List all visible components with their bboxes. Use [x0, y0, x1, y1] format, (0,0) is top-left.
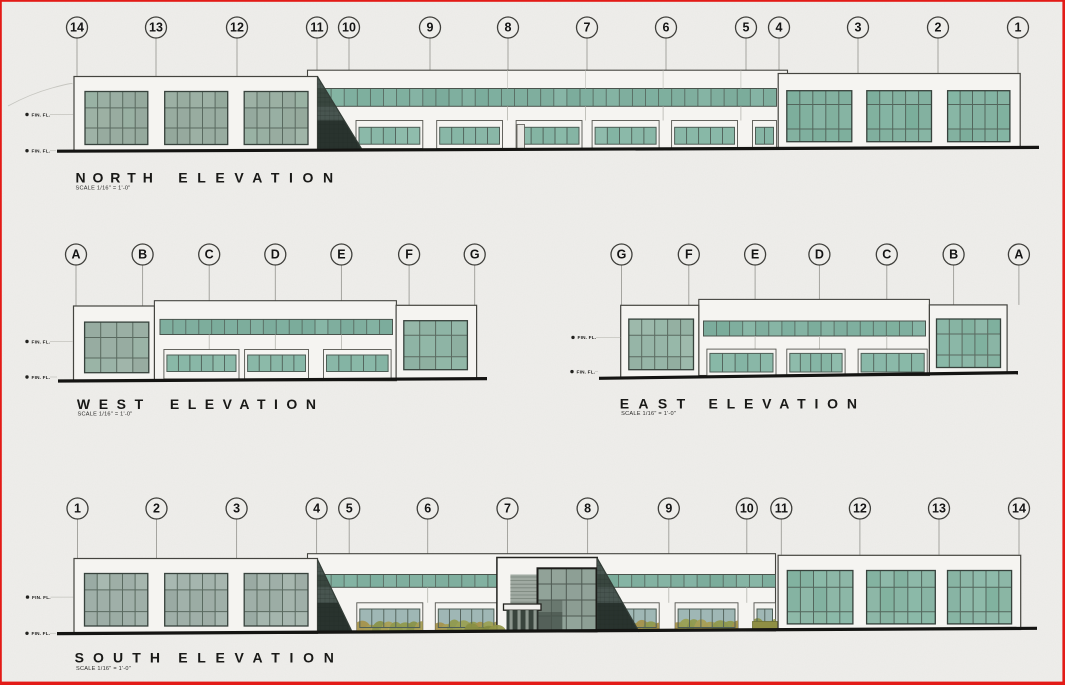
svg-text:4: 4 — [313, 502, 320, 516]
svg-text:FIN. FL.: FIN. FL. — [32, 112, 51, 117]
svg-text:E: E — [337, 248, 345, 262]
svg-text:1: 1 — [74, 502, 81, 516]
svg-text:FIN. FL.: FIN. FL. — [32, 375, 51, 380]
svg-text:2: 2 — [935, 21, 942, 35]
svg-text:10: 10 — [342, 21, 356, 35]
svg-text:12: 12 — [230, 21, 244, 35]
svg-text:3: 3 — [233, 502, 240, 516]
svg-text:C: C — [205, 248, 214, 262]
svg-text:A: A — [1014, 248, 1023, 262]
svg-text:2: 2 — [153, 502, 160, 516]
svg-text:G: G — [470, 248, 480, 262]
svg-text:FIN. FL.: FIN. FL. — [32, 595, 51, 600]
svg-text:1: 1 — [1015, 21, 1022, 35]
svg-text:13: 13 — [932, 502, 946, 516]
svg-text:G: G — [617, 248, 627, 262]
svg-text:SCALE 1/16" = 1'-0": SCALE 1/16" = 1'-0" — [76, 666, 131, 672]
svg-text:WEST: WEST — [77, 396, 152, 412]
svg-text:14: 14 — [1012, 502, 1026, 516]
svg-text:EAST: EAST — [620, 396, 695, 412]
svg-text:ELEVATION: ELEVATION — [178, 170, 342, 186]
svg-text:C: C — [882, 248, 891, 262]
svg-text:FIN. FL.: FIN. FL. — [578, 335, 597, 340]
svg-text:FIN. FL.: FIN. FL. — [32, 631, 51, 636]
svg-text:11: 11 — [310, 21, 323, 35]
svg-text:SCALE 1/16" = 1'-0": SCALE 1/16" = 1'-0" — [76, 185, 131, 191]
svg-text:11: 11 — [775, 502, 788, 516]
svg-text:10: 10 — [740, 502, 754, 516]
svg-text:SCALE 1/16" = 1'-0": SCALE 1/16" = 1'-0" — [78, 411, 133, 417]
svg-text:7: 7 — [584, 21, 591, 35]
svg-text:9: 9 — [665, 502, 672, 516]
svg-text:7: 7 — [504, 502, 511, 516]
svg-text:12: 12 — [853, 502, 867, 516]
svg-text:13: 13 — [149, 21, 163, 35]
svg-text:FIN. FL.: FIN. FL. — [577, 369, 596, 374]
svg-text:SCALE 1/16" = 1'-0": SCALE 1/16" = 1'-0" — [621, 411, 676, 417]
svg-text:D: D — [815, 248, 824, 262]
svg-text:FIN. FL.: FIN. FL. — [32, 149, 51, 154]
svg-text:D: D — [271, 248, 280, 262]
svg-text:F: F — [685, 248, 693, 262]
svg-text:E: E — [751, 248, 759, 262]
svg-text:F: F — [405, 248, 413, 262]
svg-text:ELEVATION: ELEVATION — [178, 650, 343, 666]
svg-text:8: 8 — [584, 502, 591, 516]
svg-text:B: B — [138, 248, 147, 262]
svg-text:4: 4 — [776, 21, 783, 35]
svg-text:A: A — [71, 248, 80, 262]
svg-text:SOUTH: SOUTH — [75, 650, 170, 666]
svg-text:6: 6 — [424, 502, 431, 516]
svg-text:B: B — [949, 248, 958, 262]
svg-text:14: 14 — [70, 21, 84, 35]
svg-text:5: 5 — [743, 21, 750, 35]
svg-text:9: 9 — [427, 21, 434, 35]
svg-text:5: 5 — [346, 502, 353, 516]
svg-text:FIN. FL.: FIN. FL. — [32, 339, 51, 344]
svg-text:3: 3 — [855, 21, 862, 35]
svg-text:8: 8 — [505, 21, 512, 35]
svg-text:ELEVATION: ELEVATION — [170, 396, 325, 412]
svg-text:ELEVATION: ELEVATION — [709, 396, 866, 412]
svg-text:6: 6 — [663, 21, 670, 35]
svg-text:NORTH: NORTH — [76, 170, 160, 186]
